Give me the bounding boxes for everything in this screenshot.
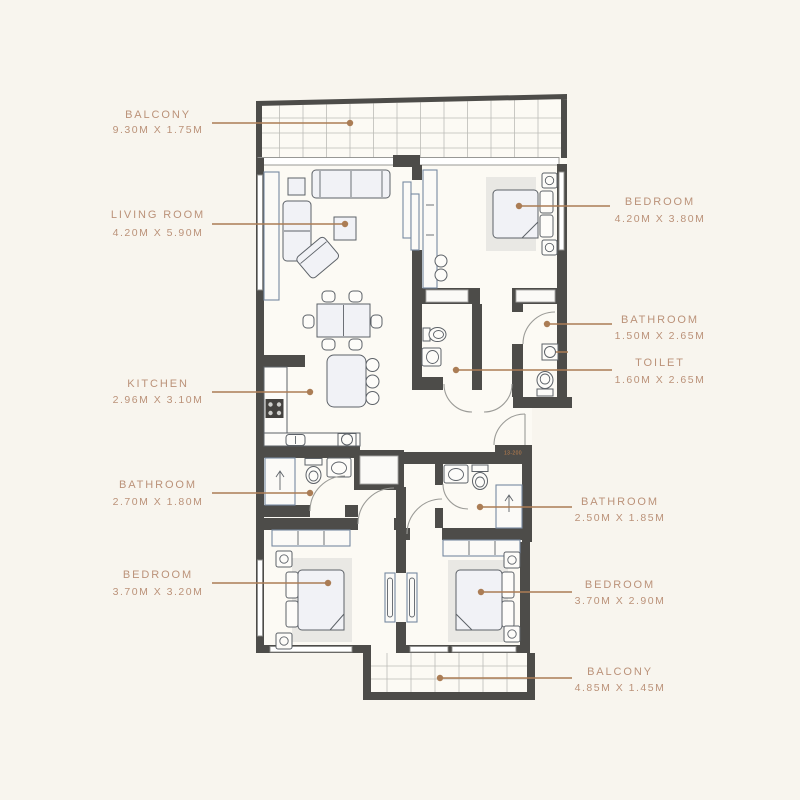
dining-chair (322, 339, 335, 350)
pillow (540, 191, 553, 213)
kitchen-island (327, 355, 366, 407)
label-bedroom-right-dim: 3.70M X 2.90M (575, 595, 666, 607)
nightstand (504, 626, 520, 642)
label-bathroom-150-dim: 1.50M X 2.65M (615, 330, 706, 342)
divider-panel (407, 573, 417, 622)
label-bedroom-left-name: BEDROOM (123, 569, 193, 581)
nightstand (504, 552, 520, 568)
toilet-tank (305, 459, 322, 466)
stool (366, 392, 379, 405)
toilet-tank (472, 465, 488, 472)
sink (545, 347, 556, 358)
dining-chair (349, 339, 362, 350)
dining-chair (303, 315, 314, 328)
sliding-door-panel (403, 182, 411, 238)
bedroom1-dresser (426, 290, 468, 302)
wardrobe (272, 530, 350, 546)
kitchen-top-wall (262, 355, 305, 367)
divider-panel (385, 573, 395, 622)
dining-chair (371, 315, 382, 328)
mid-bathroom-bottom-wall (412, 377, 443, 390)
pillow (286, 572, 298, 598)
stool (435, 269, 447, 281)
living-left-window (258, 175, 263, 290)
bedroom1-wardrobe (423, 170, 437, 288)
sliding-door-panel (411, 194, 419, 250)
pillow (502, 601, 514, 627)
floor-plan-page: BALCONY 9.30M X 1.75M LIVING ROOM 4.20M … (0, 0, 800, 800)
top-window-band-right (419, 158, 559, 166)
entrance-unit-tag: 13-200 (504, 451, 522, 457)
top-balcony-floor (262, 99, 561, 158)
pillow (540, 215, 553, 237)
dining-chair (322, 291, 335, 302)
bedroom-right-balcony-door (410, 647, 448, 653)
stove (266, 399, 284, 418)
stool (366, 359, 379, 372)
foyer-closet (360, 456, 398, 484)
toilet-bottom-entry-wall (513, 397, 572, 408)
dining-chair (349, 291, 362, 302)
bedroom1-right-window (559, 172, 564, 250)
label-bathroom-250-name: BATHROOM (581, 496, 659, 508)
round-sink (342, 434, 353, 445)
toilet-tank (537, 389, 553, 396)
label-bathroom-150-name: BATHROOM (621, 314, 699, 326)
toilet-room-dresser (516, 290, 555, 302)
label-kitchen-name: KITCHEN (127, 378, 189, 390)
nightstand (542, 240, 557, 255)
bedroom-divider-wall (396, 487, 406, 653)
label-balcony-bottom-name: BALCONY (587, 666, 653, 678)
label-bedroom1-name: BEDROOM (625, 196, 695, 208)
label-toilet-name: TOILET (635, 357, 685, 369)
nightstand (542, 173, 557, 188)
side-table (288, 178, 305, 195)
tv-console (264, 172, 279, 300)
pillow (502, 572, 514, 598)
label-toilet-dim: 1.60M X 2.65M (615, 374, 706, 386)
label-balcony-top-name: BALCONY (125, 109, 191, 121)
pillow (286, 601, 298, 627)
bottom-balcony-floor (371, 653, 527, 692)
label-bedroom-right-name: BEDROOM (585, 579, 655, 591)
bedroom-right-side-wall (520, 542, 530, 653)
label-bathroom-left-name: BATHROOM (119, 479, 197, 491)
nightstand (276, 633, 292, 649)
label-kitchen-dim: 2.96M X 3.10M (113, 394, 204, 406)
bedroom-left-window (258, 560, 263, 636)
label-bathroom-250-dim: 2.50M X 1.85M (575, 512, 666, 524)
stool (435, 255, 447, 267)
label-balcony-bottom-dim: 4.85M X 1.45M (575, 682, 666, 694)
bedroom-right-balcony-window (452, 647, 516, 653)
top-window-band-left (258, 158, 394, 166)
floor-plan-drawing: BALCONY 9.30M X 1.75M LIVING ROOM 4.20M … (0, 0, 800, 800)
kitchen-bottom-wall (264, 446, 360, 458)
coffee-table (334, 217, 356, 240)
label-bedroom1-dim: 4.20M X 3.80M (615, 213, 706, 225)
corridor-left-wall (472, 304, 482, 390)
label-balcony-top-dim: 9.30M X 1.75M (113, 124, 204, 136)
label-bedroom-left-dim: 3.70M X 3.20M (113, 586, 204, 598)
bed (298, 570, 344, 630)
nightstand (276, 551, 292, 567)
label-living-room-name: LIVING ROOM (111, 209, 205, 221)
stool (366, 375, 379, 388)
label-bathroom-left-dim: 2.70M X 1.80M (113, 496, 204, 508)
label-living-room-dim: 4.20M X 5.90M (113, 227, 204, 239)
